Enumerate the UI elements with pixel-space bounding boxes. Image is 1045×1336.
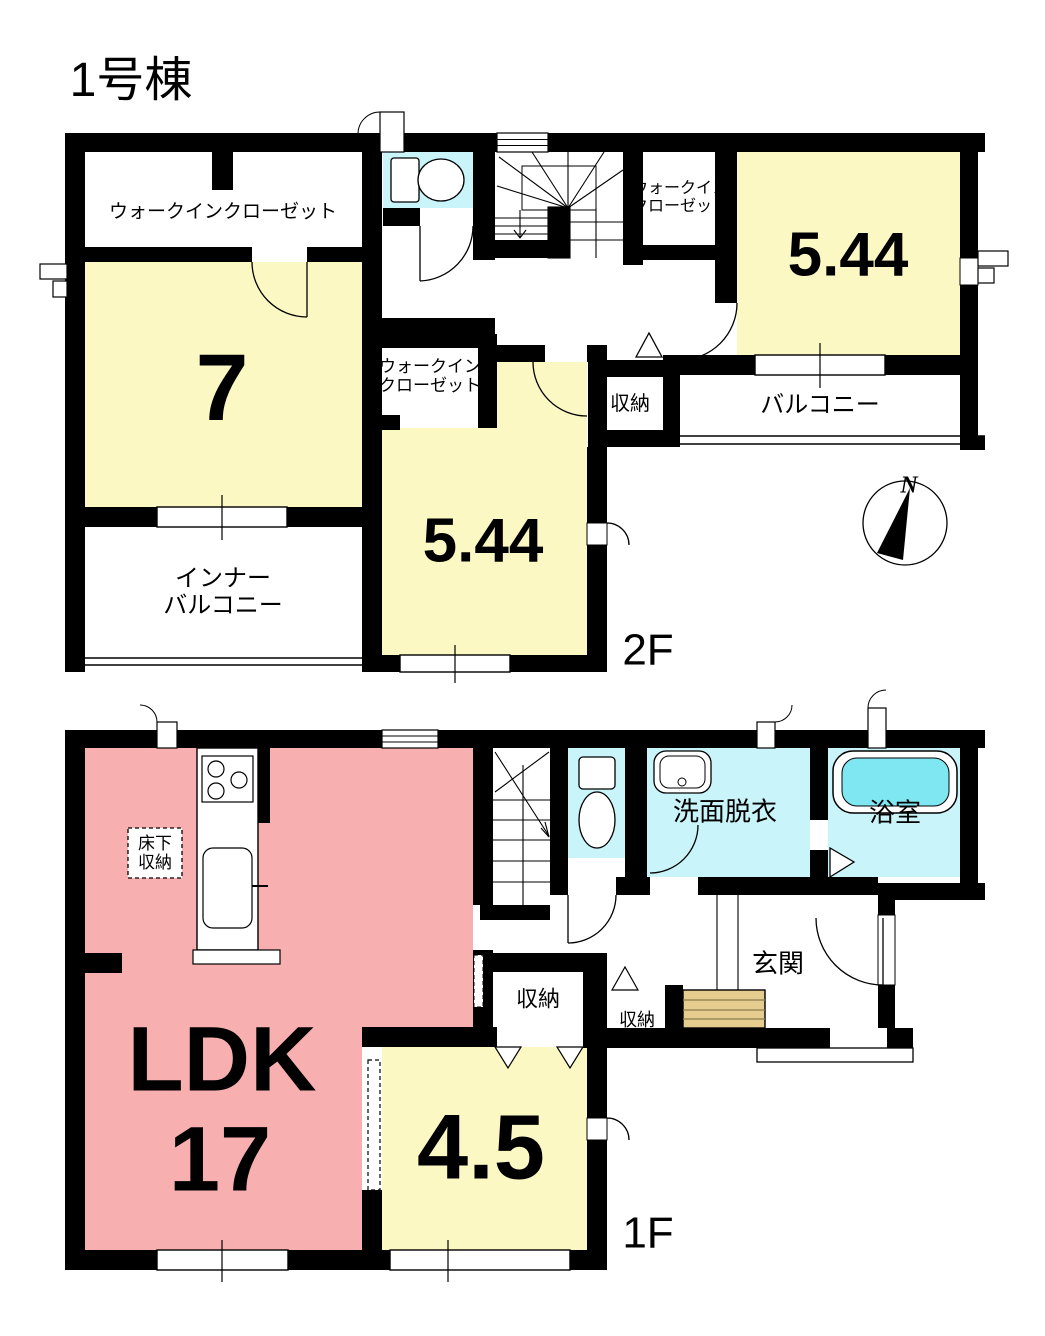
label-storage-hall: 収納 bbox=[516, 988, 560, 1013]
entrance-floor-lines bbox=[717, 895, 738, 990]
label-storage-entrance: 収納 bbox=[619, 1010, 655, 1030]
label-washroom: 洗面脱衣 bbox=[673, 797, 777, 826]
stove-icon bbox=[202, 756, 253, 802]
label-storage-2f: 収納 bbox=[610, 393, 650, 415]
label-bathroom: 浴室 bbox=[869, 798, 921, 827]
label-floor1: 1F bbox=[622, 1208, 673, 1257]
label-balcony: バルコニー bbox=[760, 393, 880, 420]
wic-right-line2: クローゼット bbox=[632, 198, 728, 216]
label-entrance: 玄関 bbox=[752, 949, 804, 978]
wic-mid-line1: ウォークイン bbox=[379, 357, 481, 376]
porch-step bbox=[757, 1048, 913, 1062]
label-room-right-size: 5.44 bbox=[788, 220, 909, 289]
floor2-toilet-icon bbox=[391, 158, 464, 202]
label-room7-size: 7 bbox=[196, 335, 249, 441]
label-floor2: 2F bbox=[622, 625, 673, 674]
label-underfloor-storage: 床下 収納 bbox=[138, 834, 172, 872]
label-room-45-size: 4.5 bbox=[417, 1096, 545, 1199]
label-ldk: LDK bbox=[127, 1008, 316, 1111]
label-inner-balcony: インナー バルコニー bbox=[163, 566, 283, 620]
wic-mid-line2: クローゼット bbox=[379, 376, 481, 395]
label-walk-in-closet-left: ウォークインクローゼット bbox=[109, 201, 337, 222]
closet-door-triangles bbox=[495, 967, 638, 1068]
underfloor-line2: 収納 bbox=[138, 853, 172, 872]
label-room-mid-size: 5.44 bbox=[423, 506, 544, 575]
wic-right-line1: ウォークイン bbox=[632, 180, 728, 198]
label-ldk-size: 17 bbox=[169, 1108, 271, 1211]
floor1-toilet-icon bbox=[579, 757, 615, 848]
underfloor-line1: 床下 bbox=[138, 834, 172, 853]
entrance-step bbox=[683, 990, 765, 1028]
inner-balcony-line1: インナー bbox=[163, 566, 283, 593]
floor1-stairs-icon bbox=[493, 752, 550, 905]
floorplan-canvas: 1号棟 ウォークインクローゼット 7 インナー バルコニー ウォークイン クロー… bbox=[0, 0, 1045, 1336]
label-walk-in-closet-right: ウォークイン クローゼット bbox=[632, 180, 728, 216]
compass-north-label: N bbox=[900, 473, 917, 500]
plan-title: 1号棟 bbox=[70, 54, 193, 108]
label-walk-in-closet-mid: ウォークイン クローゼット bbox=[379, 357, 481, 395]
inner-balcony-line2: バルコニー bbox=[163, 593, 283, 620]
washbasin-icon bbox=[654, 751, 711, 793]
